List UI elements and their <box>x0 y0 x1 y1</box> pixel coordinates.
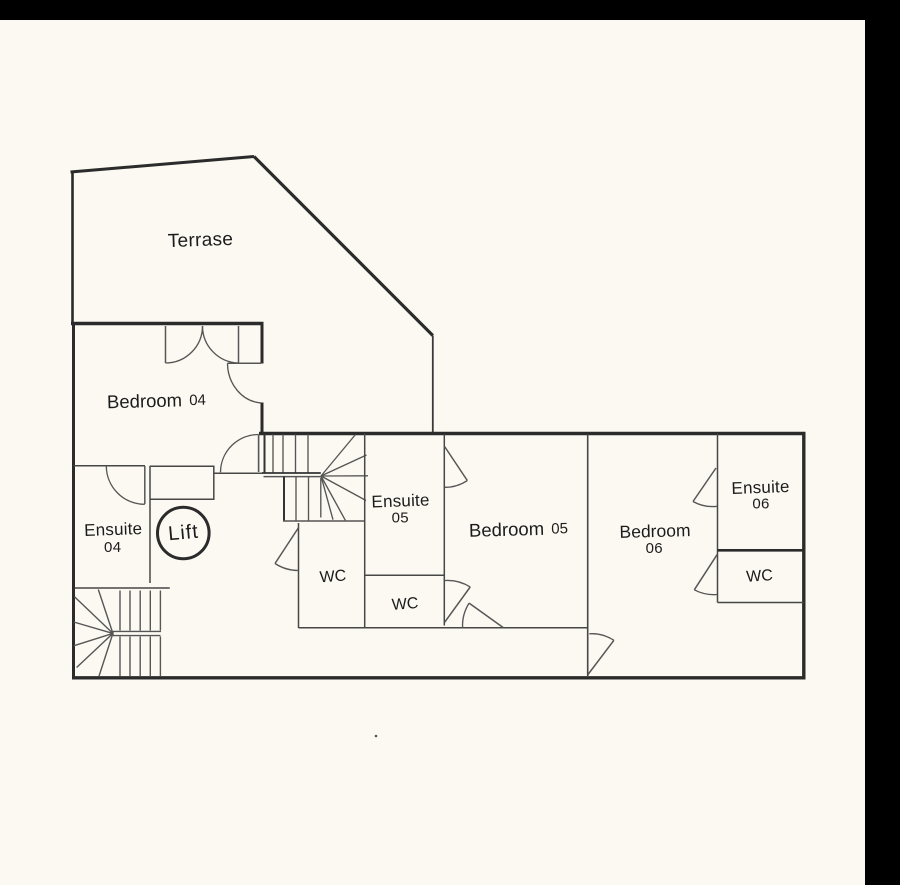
svg-text:WC: WC <box>391 595 419 614</box>
svg-text:WC: WC <box>746 567 774 586</box>
svg-text:Bedroom 05: Bedroom 05 <box>469 517 568 541</box>
svg-text:05: 05 <box>392 510 409 527</box>
svg-text:06: 06 <box>646 540 663 557</box>
svg-text:Bedroom 04: Bedroom 04 <box>107 389 206 413</box>
svg-text:Bedroom: Bedroom <box>619 520 691 542</box>
svg-text:Ensuite: Ensuite <box>84 519 143 540</box>
svg-text:WC: WC <box>319 568 347 587</box>
svg-text:Terrase: Terrase <box>167 229 233 252</box>
svg-text:Ensuite: Ensuite <box>371 490 430 511</box>
svg-text:04: 04 <box>104 539 121 556</box>
svg-text:06: 06 <box>752 496 769 513</box>
svg-text:Lift: Lift <box>167 521 199 546</box>
